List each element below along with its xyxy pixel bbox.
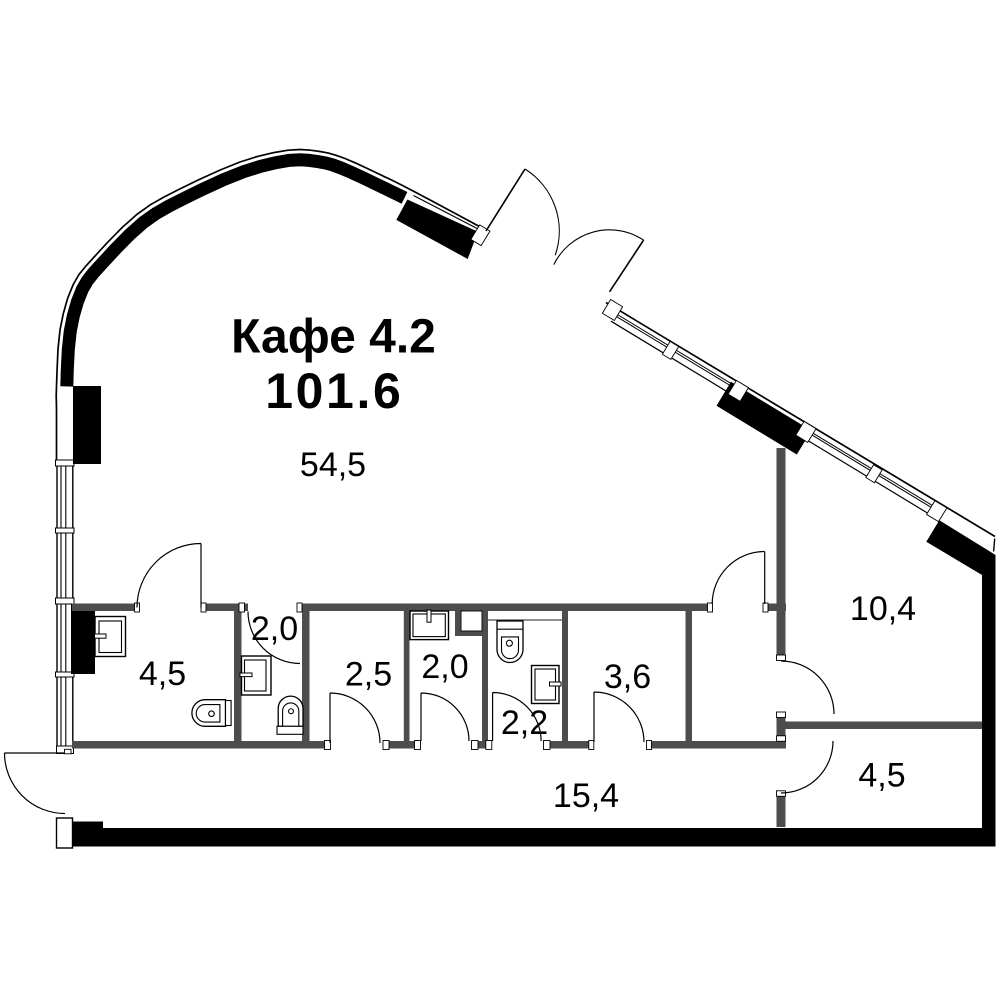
svg-text:15,4: 15,4 xyxy=(553,777,619,815)
svg-text:4,5: 4,5 xyxy=(858,757,905,795)
svg-text:3,6: 3,6 xyxy=(604,658,651,696)
svg-text:101.6: 101.6 xyxy=(265,363,403,419)
svg-text:Кафе 4.2: Кафе 4.2 xyxy=(231,311,436,364)
svg-text:10,4: 10,4 xyxy=(850,590,916,628)
svg-text:54,5: 54,5 xyxy=(300,446,366,484)
svg-text:4,5: 4,5 xyxy=(139,655,186,693)
svg-text:2,0: 2,0 xyxy=(251,610,298,648)
svg-text:2,2: 2,2 xyxy=(501,704,548,742)
svg-text:2,5: 2,5 xyxy=(345,656,392,694)
svg-text:2,0: 2,0 xyxy=(421,648,468,686)
